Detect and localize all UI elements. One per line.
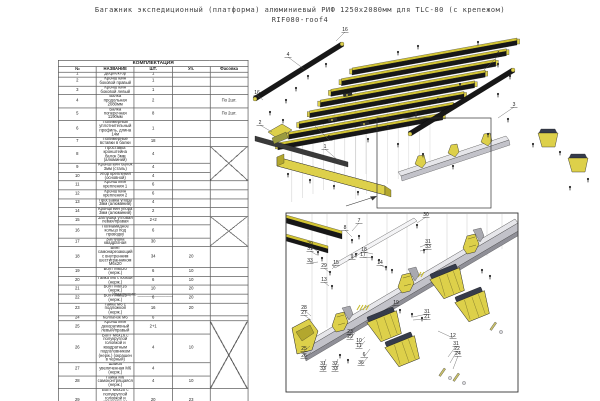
table-cell	[210, 77, 248, 86]
table-cell	[172, 225, 210, 238]
table-cell: 6	[134, 181, 172, 190]
callout-label-bottom: 6	[363, 352, 366, 358]
table-cell: 9	[58, 163, 96, 172]
table-row: 11Кронштейн крепления 16	[58, 181, 248, 190]
callout-label-top: 4	[287, 52, 290, 58]
table-cell: 20	[58, 277, 96, 286]
callout-label-bottom: 36	[358, 360, 364, 366]
table-cell	[172, 163, 210, 172]
table-cell	[210, 294, 248, 303]
table-cell	[210, 268, 248, 277]
table-cell: Проставка кронштейна балок 3мм (алюминий…	[96, 146, 134, 163]
table-cell: 22	[58, 294, 96, 303]
table-cell: 1	[134, 86, 172, 95]
callout-label-top: 16	[254, 90, 260, 96]
table-cell: 2	[134, 207, 172, 216]
table-cell	[172, 321, 210, 334]
table-cell: Кронштейн упора 3мм (алюминий)	[96, 207, 134, 216]
table-row: 18Винт самонарезающий с внутренним шести…	[58, 247, 248, 268]
table-cell: Кронштейн декоративный левый/правый	[96, 321, 134, 334]
table-cell	[172, 172, 210, 181]
callout-label-bottom: 8	[344, 225, 347, 231]
parts-table-wrap: КОМПЛЕКТАЦИЯ№НАЗВАНИЕШТ.Уп.Фасовка1Дефле…	[58, 60, 248, 401]
table-cell	[210, 303, 248, 316]
table-row: 25Кронштейн декоративный левый/правый2+1	[58, 321, 248, 334]
table-row: 23Гайка М6 с подложкой (нерж.)1620	[58, 303, 248, 316]
table-cell: 8	[58, 146, 96, 163]
callout-label-bottom: 33	[320, 366, 326, 372]
table-cell	[210, 181, 248, 190]
table-cell: Кронштейн крепления 2	[96, 190, 134, 199]
table-cell: Кронштейн боковой правый	[96, 77, 134, 86]
table-row: 12Кронштейн крепления 26	[58, 190, 248, 199]
table-cell: По 2шт.	[210, 95, 248, 108]
table-cell	[210, 86, 248, 95]
table-cell: 23	[172, 389, 210, 401]
table-cell: 4	[58, 95, 96, 108]
title-line1: Багажник экспедиционный (платформа) алюм…	[0, 5, 600, 15]
table-cell: 26	[58, 334, 96, 363]
table-cell: 8	[134, 108, 172, 121]
table-cell	[210, 247, 248, 268]
callout-label-top: 16	[342, 27, 348, 33]
table-cell	[172, 86, 210, 95]
table-cell	[172, 95, 210, 108]
callout-label-bottom: 24	[455, 351, 461, 357]
table-cell	[210, 190, 248, 199]
callout-label-bottom: 26	[301, 353, 307, 359]
callout-label-bottom: 11	[356, 343, 361, 349]
table-cell: 27	[58, 363, 96, 376]
callout-label-bottom: 9	[351, 254, 354, 260]
table-cell: 16	[134, 303, 172, 316]
callout-label-bottom: 19	[393, 300, 399, 306]
table-cell: 30	[134, 238, 172, 247]
table-cell	[210, 199, 248, 208]
table-cell: Полимерный уплотнительный профиль, длина…	[96, 121, 134, 138]
table-cell: 13	[58, 199, 96, 208]
table-cell: 4	[134, 334, 172, 363]
table-cell: 10	[172, 268, 210, 277]
table-cell: 4	[134, 199, 172, 208]
table-cell: 2	[58, 77, 96, 86]
table-cell: 4	[134, 146, 172, 163]
table-cell: Гайка М6 с подложкой (нерж.)	[96, 303, 134, 316]
table-cell	[210, 207, 248, 216]
table-cell: 6	[58, 121, 96, 138]
table-row: 4Балка продольная 2080мм2По 2шт.	[58, 95, 248, 108]
callout-label-bottom: 25	[301, 346, 307, 352]
callout-label-bottom: 15	[333, 260, 339, 266]
table-cell: 2+1	[134, 321, 172, 334]
table-cell: Гайка М6 самоконтрящаяся (нерж.)	[96, 376, 134, 389]
table-cell: 17	[58, 238, 96, 247]
table-cell: 12	[58, 190, 96, 199]
table-cell: 2	[134, 95, 172, 108]
callout-label-bottom: 33	[425, 244, 431, 250]
drawing-title: Багажник экспедиционный (платформа) алюм…	[0, 5, 600, 25]
table-cell: 18	[58, 247, 96, 268]
table-cell	[172, 216, 210, 225]
table-row: 20Гайка М6 с юбкой (нерж.)610	[58, 277, 248, 286]
callout-label-top: 4	[497, 51, 500, 57]
table-cell: 28	[58, 376, 96, 389]
table-row: 19Болт М6х20 (нерж.)610	[58, 268, 248, 277]
table-cell: 23	[58, 303, 96, 316]
table-cell	[172, 108, 210, 121]
table-cell: 21	[58, 285, 96, 294]
table-cell: Шайба увеличенная М6 (нерж.)	[96, 363, 134, 376]
table-cell: 4	[134, 163, 172, 172]
table-cell: 1	[134, 121, 172, 138]
table-row: 3Кронштейн боковой левый1	[58, 86, 248, 95]
crossed-cell	[210, 321, 248, 389]
table-cell: 11	[58, 181, 96, 190]
table-cell: 5	[58, 108, 96, 121]
table-cell: 14	[58, 207, 96, 216]
table-cell: 2+2	[134, 216, 172, 225]
callout-label-bottom: 29	[347, 334, 353, 340]
table-cell: Болт М6х20 (нерж.)	[96, 268, 134, 277]
table-cell: Полимерные вставки в балки	[96, 138, 134, 147]
table-cell: Балка продольная 2080мм	[96, 95, 134, 108]
table-cell: 6	[134, 225, 172, 238]
table-cell: 6	[134, 268, 172, 277]
table-cell	[210, 285, 248, 294]
table-cell: 10	[172, 334, 210, 363]
table-cell: 10	[58, 172, 96, 181]
table-cell: 15	[58, 216, 96, 225]
table-cell	[172, 363, 210, 376]
table-cell: Проставка упора 3мм (алюминий)	[96, 199, 134, 208]
table-cell	[172, 238, 210, 247]
parts-table-body: КОМПЛЕКТАЦИЯ№НАЗВАНИЕШТ.Уп.Фасовка1Дефле…	[58, 60, 248, 401]
callout-label-bottom: 31	[307, 246, 313, 252]
table-cell: Кронштейн крепления 1	[96, 181, 134, 190]
table-cell: 10	[172, 277, 210, 286]
callout-label-bottom: 33	[307, 258, 313, 264]
callout-label-top: 3	[513, 102, 516, 108]
table-cell: Кронштейн боковой левый	[96, 86, 134, 95]
table-cell: Болт М6х16 с полукруглой головкой и квад…	[96, 334, 134, 363]
callout-label-top: 5	[328, 135, 331, 141]
table-cell	[172, 207, 210, 216]
table-cell: Болт М8х20 с полукруглой головкой и квад…	[96, 389, 134, 401]
table-cell: Балка поперечная 1190мм	[96, 108, 134, 121]
table-row: 7Полимерные вставки в балки18	[58, 138, 248, 147]
table-cell: 10	[172, 376, 210, 389]
table-cell: 6	[134, 190, 172, 199]
table-row: 29Болт М8х20 с полукруглой головкой и кв…	[58, 389, 248, 401]
table-row: 5Балка поперечная 1190мм8По 2шт.	[58, 108, 248, 121]
packer-line: Упаковщик: ______________	[112, 292, 173, 297]
exploded-view-top: 1644162513	[248, 24, 598, 212]
table-cell	[210, 277, 248, 286]
table-cell: 4	[134, 363, 172, 376]
callout-label-top: 1	[324, 144, 327, 150]
table-cell: Заглушка квадратная	[96, 238, 134, 247]
table-cell: Упор крепления (основной)	[96, 172, 134, 181]
table-cell: Винт самонарезающий с внутренним шестигр…	[96, 247, 134, 268]
table-cell: 16	[58, 225, 96, 238]
packer-blank: ______________	[137, 292, 172, 297]
parts-table: КОМПЛЕКТАЦИЯ№НАЗВАНИЕШТ.Уп.Фасовка1Дефле…	[58, 60, 248, 401]
callout-label-bottom: 29	[321, 263, 327, 269]
table-cell	[172, 181, 210, 190]
table-row: 15Заглушка угловая левая/правая2+2	[58, 216, 248, 225]
detail-view-bottom: 3078313318179142931332915132827252631333…	[252, 210, 600, 401]
callout-label-bottom: 21	[424, 314, 430, 320]
table-cell: 18	[134, 138, 172, 147]
callout-label-bottom: 33	[332, 366, 338, 372]
table-cell: Гайка М6 с юбкой (нерж.)	[96, 277, 134, 286]
table-cell: 29	[58, 389, 96, 401]
table-row: 14Кронштейн упора 3мм (алюминий)2	[58, 207, 248, 216]
table-cell: Кронштейн балок 3мм (сталь)	[96, 163, 134, 172]
table-cell	[172, 146, 210, 163]
table-row: 13Проставка упора 3мм (алюминий)4	[58, 199, 248, 208]
callout-label-bottom: 17	[360, 252, 366, 258]
crossed-cell	[210, 146, 248, 181]
table-cell: 3	[58, 86, 96, 95]
drawing-page: { "title": { "line1": "Багажник экспедиц…	[0, 0, 600, 401]
crossed-cell	[210, 216, 248, 247]
callout-label-bottom: 12	[450, 333, 456, 339]
table-cell: 1	[134, 77, 172, 86]
table-cell: 34	[134, 247, 172, 268]
table-cell	[172, 138, 210, 147]
table-row: 6Полимерный уплотнительный профиль, длин…	[58, 121, 248, 138]
table-cell	[172, 199, 210, 208]
table-row: 8Проставка кронштейна балок 3мм (алюмини…	[58, 146, 248, 163]
table-cell: 25	[58, 321, 96, 334]
table-cell: 4	[134, 376, 172, 389]
table-cell: 20	[172, 303, 210, 316]
table-cell	[210, 121, 248, 138]
table-cell: 7	[58, 138, 96, 147]
table-cell: 20	[172, 294, 210, 303]
packer-label: Упаковщик:	[112, 292, 136, 297]
callout-label-bottom: 13	[321, 277, 327, 283]
callout-label-bottom: 27	[301, 310, 307, 316]
table-cell: 19	[58, 268, 96, 277]
table-cell: По 2шт.	[210, 108, 248, 121]
table-cell: 20	[134, 389, 172, 401]
table-cell: Заглушка угловая левая/правая	[96, 216, 134, 225]
table-cell: 20	[172, 247, 210, 268]
table-cell: 6	[134, 277, 172, 286]
callout-label-bottom: 14	[377, 260, 383, 266]
callout-label-top: 2	[259, 120, 262, 126]
table-cell: 20	[172, 285, 210, 294]
table-cell: Полиамидное кольцо под проводку	[96, 225, 134, 238]
table-cell: 4	[134, 172, 172, 181]
table-cell	[172, 190, 210, 199]
table-cell	[210, 138, 248, 147]
table-cell	[172, 121, 210, 138]
table-cell	[210, 389, 248, 401]
table-row: 2Кронштейн боковой правый1	[58, 77, 248, 86]
callout-label-bottom: 7	[358, 218, 361, 224]
callout-label-bottom: 30	[423, 212, 429, 218]
table-cell	[172, 77, 210, 86]
